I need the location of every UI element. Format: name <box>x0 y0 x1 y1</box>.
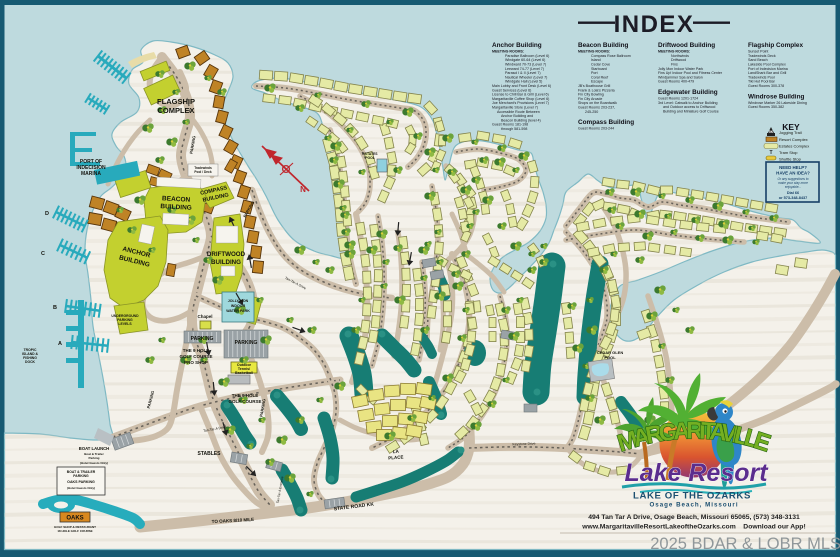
svg-text:BOAT LAUNCH: BOAT LAUNCH <box>79 446 109 451</box>
svg-text:OAKS PARKING: OAKS PARKING <box>67 480 95 484</box>
svg-text:Chapel: Chapel <box>197 314 212 319</box>
svg-text:or 573-348-8437: or 573-348-8437 <box>779 196 808 200</box>
svg-text:Compass Building: Compass Building <box>578 119 634 126</box>
svg-text:NEED HELP?: NEED HELP? <box>779 165 807 170</box>
svg-text:A: A <box>58 341 62 347</box>
svg-text:18 HOLE GOLF COURSE: 18 HOLE GOLF COURSE <box>57 529 92 533</box>
svg-text:Edgewater Building: Edgewater Building <box>658 89 718 96</box>
svg-text:5K: 5K <box>769 130 774 134</box>
svg-text:through 581-598: through 581-598 <box>501 127 527 131</box>
svg-text:Guest Rooms 400-479: Guest Rooms 400-479 <box>658 80 694 84</box>
svg-text:HAVE AN IDEA?: HAVE AN IDEA? <box>776 171 810 176</box>
svg-text:GOLF COURSE: GOLF COURSE <box>179 354 212 359</box>
svg-text:Basketball: Basketball <box>235 371 253 375</box>
svg-text:FLAGSHIP: FLAGSHIP <box>157 97 195 106</box>
svg-text:JOLLY MON: JOLLY MON <box>228 299 249 303</box>
svg-text:BUILDING: BUILDING <box>211 259 241 266</box>
svg-text:Jogging Trail: Jogging Trail <box>779 130 802 135</box>
svg-text:2025 BDAR & LOBR MLS: 2025 BDAR & LOBR MLS <box>650 535 840 553</box>
svg-text:INDOOR: INDOOR <box>231 304 246 308</box>
svg-text:Osage Beach, Missouri: Osage Beach, Missouri <box>649 502 738 509</box>
svg-text:OAKS: OAKS <box>66 516 83 522</box>
svg-text:Tram Stop: Tram Stop <box>779 150 798 155</box>
svg-text:C: C <box>41 251 45 257</box>
svg-text:www.MargaritavilleResortLakeof: www.MargaritavilleResortLakeoftheOzarks.… <box>581 524 805 531</box>
svg-text:Guest Rooms 203-244: Guest Rooms 203-244 <box>578 127 614 131</box>
svg-text:INDEX: INDEX <box>614 11 695 38</box>
svg-text:COMPLEX: COMPLEX <box>157 106 194 115</box>
svg-text:PARKING: PARKING <box>73 474 89 478</box>
svg-text:Flagship Complex: Flagship Complex <box>748 42 803 49</box>
svg-text:LAKE OF THE OZARKS: LAKE OF THE OZARKS <box>633 491 751 502</box>
svg-text:PRO SHOP: PRO SHOP <box>184 360 208 365</box>
svg-text:Guest Rooms 300-378: Guest Rooms 300-378 <box>748 84 784 88</box>
svg-text:245-250: 245-250 <box>585 110 598 114</box>
svg-text:THE 9 HOLE: THE 9 HOLE <box>232 393 259 398</box>
svg-text:D: D <box>45 211 49 217</box>
svg-text:Estates Complex: Estates Complex <box>779 144 809 149</box>
svg-text:enjoyable...: enjoyable... <box>785 185 801 189</box>
svg-text:Keystone Drive: Keystone Drive <box>512 442 535 447</box>
svg-text:MARINA: MARINA <box>81 171 101 177</box>
svg-text:Resort Complex: Resort Complex <box>779 137 808 142</box>
svg-text:Beacon Building: Beacon Building <box>578 42 629 49</box>
svg-text:DOCK: DOCK <box>25 360 36 364</box>
svg-text:DRIFTWOOD: DRIFTWOOD <box>207 251 246 258</box>
svg-text:THE 9 HOLE: THE 9 HOLE <box>183 348 210 353</box>
svg-text:Guest Rooms 350-382: Guest Rooms 350-382 <box>748 105 784 109</box>
svg-text:GOLF COURSE: GOLF COURSE <box>228 399 261 404</box>
svg-text:STABLES: STABLES <box>198 451 222 457</box>
svg-text:POOL: POOL <box>365 156 375 160</box>
svg-text:Shuttle Stop: Shuttle Stop <box>779 157 802 162</box>
svg-text:Windrose Building: Windrose Building <box>748 93 804 100</box>
svg-text:(Hotel Guests Only): (Hotel Guests Only) <box>80 461 108 465</box>
svg-text:N: N <box>300 185 306 194</box>
svg-text:PARKING: PARKING <box>191 336 214 342</box>
svg-text:WATER PARK: WATER PARK <box>226 309 250 313</box>
svg-text:LEVELS: LEVELS <box>118 322 132 326</box>
svg-text:B: B <box>53 305 57 311</box>
svg-text:(Hotel Guests Only): (Hotel Guests Only) <box>67 486 95 490</box>
svg-text:Building and Miniature Golf Co: Building and Miniature Golf Course <box>663 110 719 114</box>
svg-text:494 Tan Tar A Drive, Osage Bea: 494 Tan Tar A Drive, Osage Beach, Missou… <box>588 514 800 521</box>
svg-text:PARKING: PARKING <box>235 340 258 346</box>
svg-text:Pool / Deck: Pool / Deck <box>194 170 211 174</box>
svg-text:BEACON: BEACON <box>162 195 191 203</box>
svg-text:Anchor Building: Anchor Building <box>492 42 542 49</box>
svg-text:T: T <box>769 150 772 156</box>
svg-text:Dial 66: Dial 66 <box>787 191 799 195</box>
svg-text:Parking: Parking <box>88 456 99 460</box>
svg-text:Driftwood Building: Driftwood Building <box>658 42 715 49</box>
